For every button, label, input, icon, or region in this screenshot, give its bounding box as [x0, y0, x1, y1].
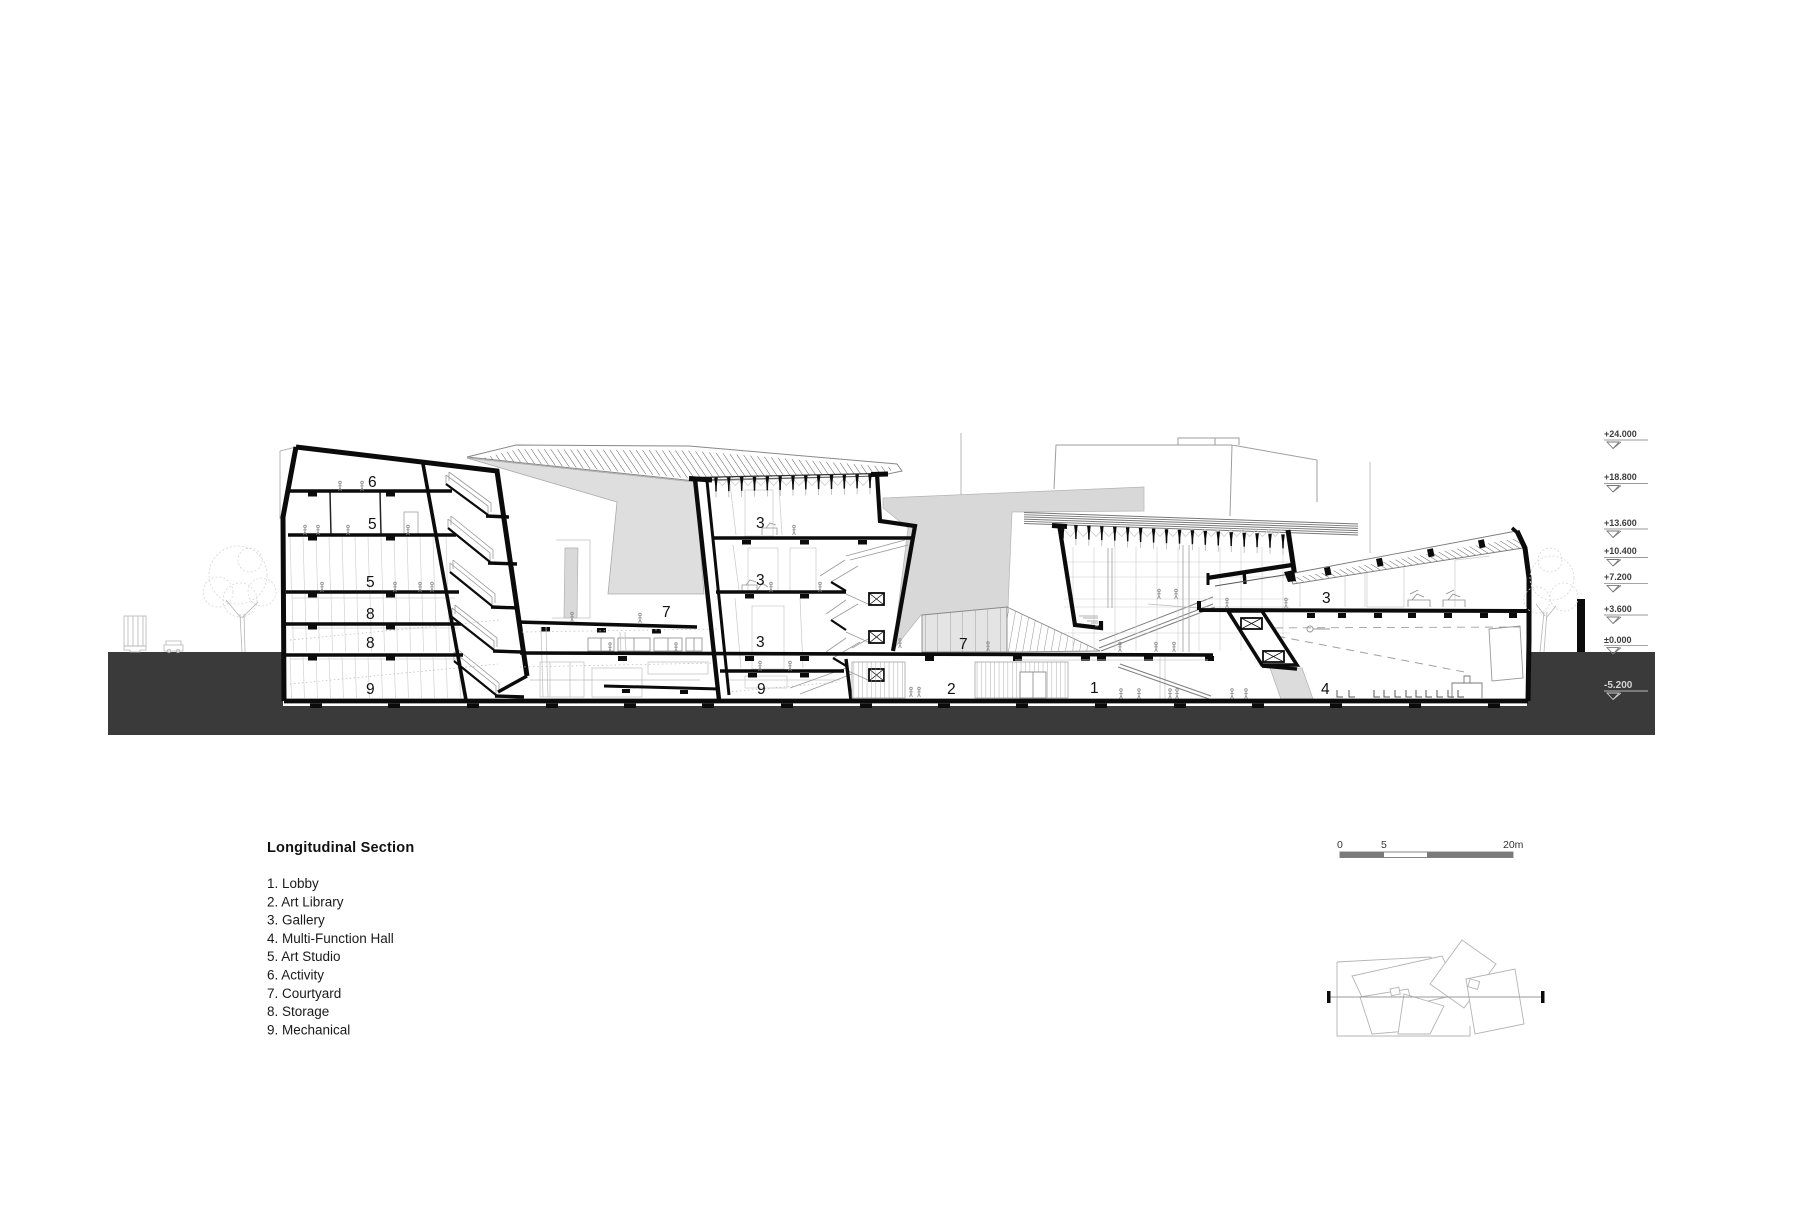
svg-text:+24.000: +24.000	[1604, 429, 1637, 439]
svg-text:+18.800: +18.800	[1604, 472, 1637, 482]
svg-text:3: 3	[756, 515, 765, 532]
svg-text:4: 4	[1321, 681, 1330, 698]
svg-text:3: 3	[756, 572, 765, 589]
svg-text:8. Storage: 8. Storage	[267, 1004, 329, 1019]
svg-text:1. Lobby: 1. Lobby	[267, 876, 319, 891]
svg-text:3: 3	[1322, 590, 1331, 607]
svg-text:0: 0	[1337, 839, 1343, 851]
svg-text:5: 5	[1381, 839, 1387, 851]
svg-text:±0.000: ±0.000	[1604, 635, 1631, 645]
svg-text:5: 5	[366, 574, 375, 591]
svg-text:7: 7	[959, 636, 968, 653]
svg-text:5. Art Studio: 5. Art Studio	[267, 949, 341, 964]
svg-text:+7.200: +7.200	[1604, 572, 1632, 582]
svg-text:9: 9	[757, 681, 766, 698]
svg-text:4. Multi-Function Hall: 4. Multi-Function Hall	[267, 931, 394, 946]
svg-text:3: 3	[756, 634, 765, 651]
svg-text:6: 6	[368, 474, 377, 491]
svg-text:Longitudinal Section: Longitudinal Section	[267, 840, 414, 856]
svg-text:8: 8	[366, 635, 375, 652]
svg-text:5: 5	[368, 516, 377, 533]
svg-text:+10.400: +10.400	[1604, 546, 1637, 556]
svg-text:1: 1	[1090, 680, 1099, 697]
svg-text:7. Courtyard: 7. Courtyard	[267, 986, 341, 1001]
svg-text:8: 8	[366, 606, 375, 623]
svg-text:-5.200: -5.200	[1604, 680, 1633, 691]
svg-text:20m: 20m	[1503, 839, 1524, 851]
svg-text:9: 9	[366, 681, 375, 698]
svg-text:2. Art Library: 2. Art Library	[267, 894, 344, 909]
svg-text:7: 7	[662, 604, 671, 621]
svg-text:2: 2	[947, 681, 956, 698]
svg-text:+13.600: +13.600	[1604, 518, 1637, 528]
svg-text:9. Mechanical: 9. Mechanical	[267, 1022, 350, 1037]
svg-text:3. Gallery: 3. Gallery	[267, 913, 325, 928]
svg-text:+3.600: +3.600	[1604, 604, 1632, 614]
svg-text:6. Activity: 6. Activity	[267, 968, 324, 983]
